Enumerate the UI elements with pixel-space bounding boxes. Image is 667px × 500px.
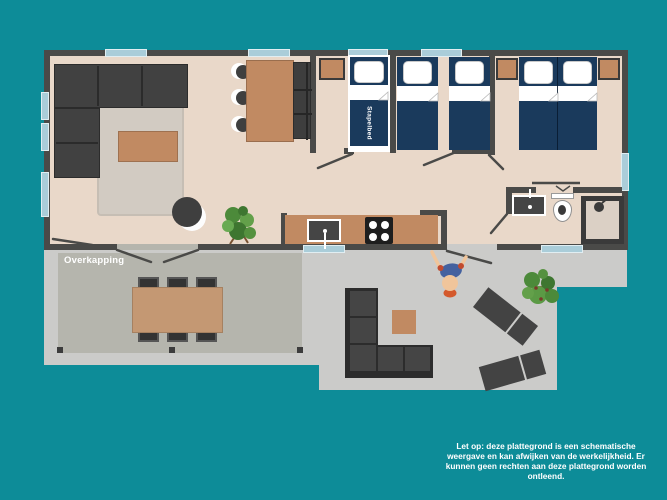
floor-plan-canvas: Overkapping <box>0 0 667 500</box>
terrace-post <box>297 347 303 353</box>
outdoor-side-table <box>392 310 416 334</box>
shower <box>581 196 624 244</box>
overkapping-label: Overkapping <box>64 255 124 266</box>
single-bed <box>449 57 490 150</box>
back-door-opening <box>447 244 497 250</box>
toilet <box>551 193 574 223</box>
stapelbed-label: Stapelbed <box>366 106 373 140</box>
window <box>41 92 49 120</box>
bathroom-sink <box>512 195 546 216</box>
terrace-strip <box>557 250 627 287</box>
dining-table <box>246 60 294 142</box>
terrace-post <box>57 347 63 353</box>
outdoor-sofa <box>345 288 433 378</box>
window <box>421 49 462 57</box>
egg-chair <box>172 197 208 233</box>
disclaimer-line: ontleend. <box>432 471 660 481</box>
disclaimer-line: Let op: deze plattegrond is een schemati… <box>432 441 660 451</box>
wall-kitchen-corner-v <box>441 210 447 249</box>
wardrobe <box>319 58 345 80</box>
window <box>105 49 147 57</box>
terrace-table <box>132 287 223 333</box>
disclaimer-line: weergave en kan afwijken van de werkelij… <box>432 451 660 461</box>
window <box>621 153 629 191</box>
stove <box>365 217 393 244</box>
wardrobe <box>598 58 620 80</box>
double-door-opening <box>117 244 198 250</box>
wall-bathroom-top-b <box>573 187 622 193</box>
dining-bench <box>293 62 311 139</box>
coffee-table <box>118 131 178 162</box>
window <box>248 49 290 57</box>
disclaimer-text: Let op: deze plattegrond is een schemati… <box>432 441 660 481</box>
kitchen-sink <box>307 219 341 242</box>
wall-bedroom1-bedroom2 <box>390 50 396 153</box>
wardrobe <box>496 58 518 80</box>
window <box>41 123 49 151</box>
window <box>41 172 49 217</box>
window <box>541 245 583 253</box>
single-bed <box>397 57 438 150</box>
bunk-bed: Stapelbed <box>348 55 390 152</box>
double-bed <box>519 57 597 150</box>
terrace-post <box>169 347 175 353</box>
disclaimer-line: kunnen geen rechten aan deze plattegrond… <box>432 461 660 471</box>
